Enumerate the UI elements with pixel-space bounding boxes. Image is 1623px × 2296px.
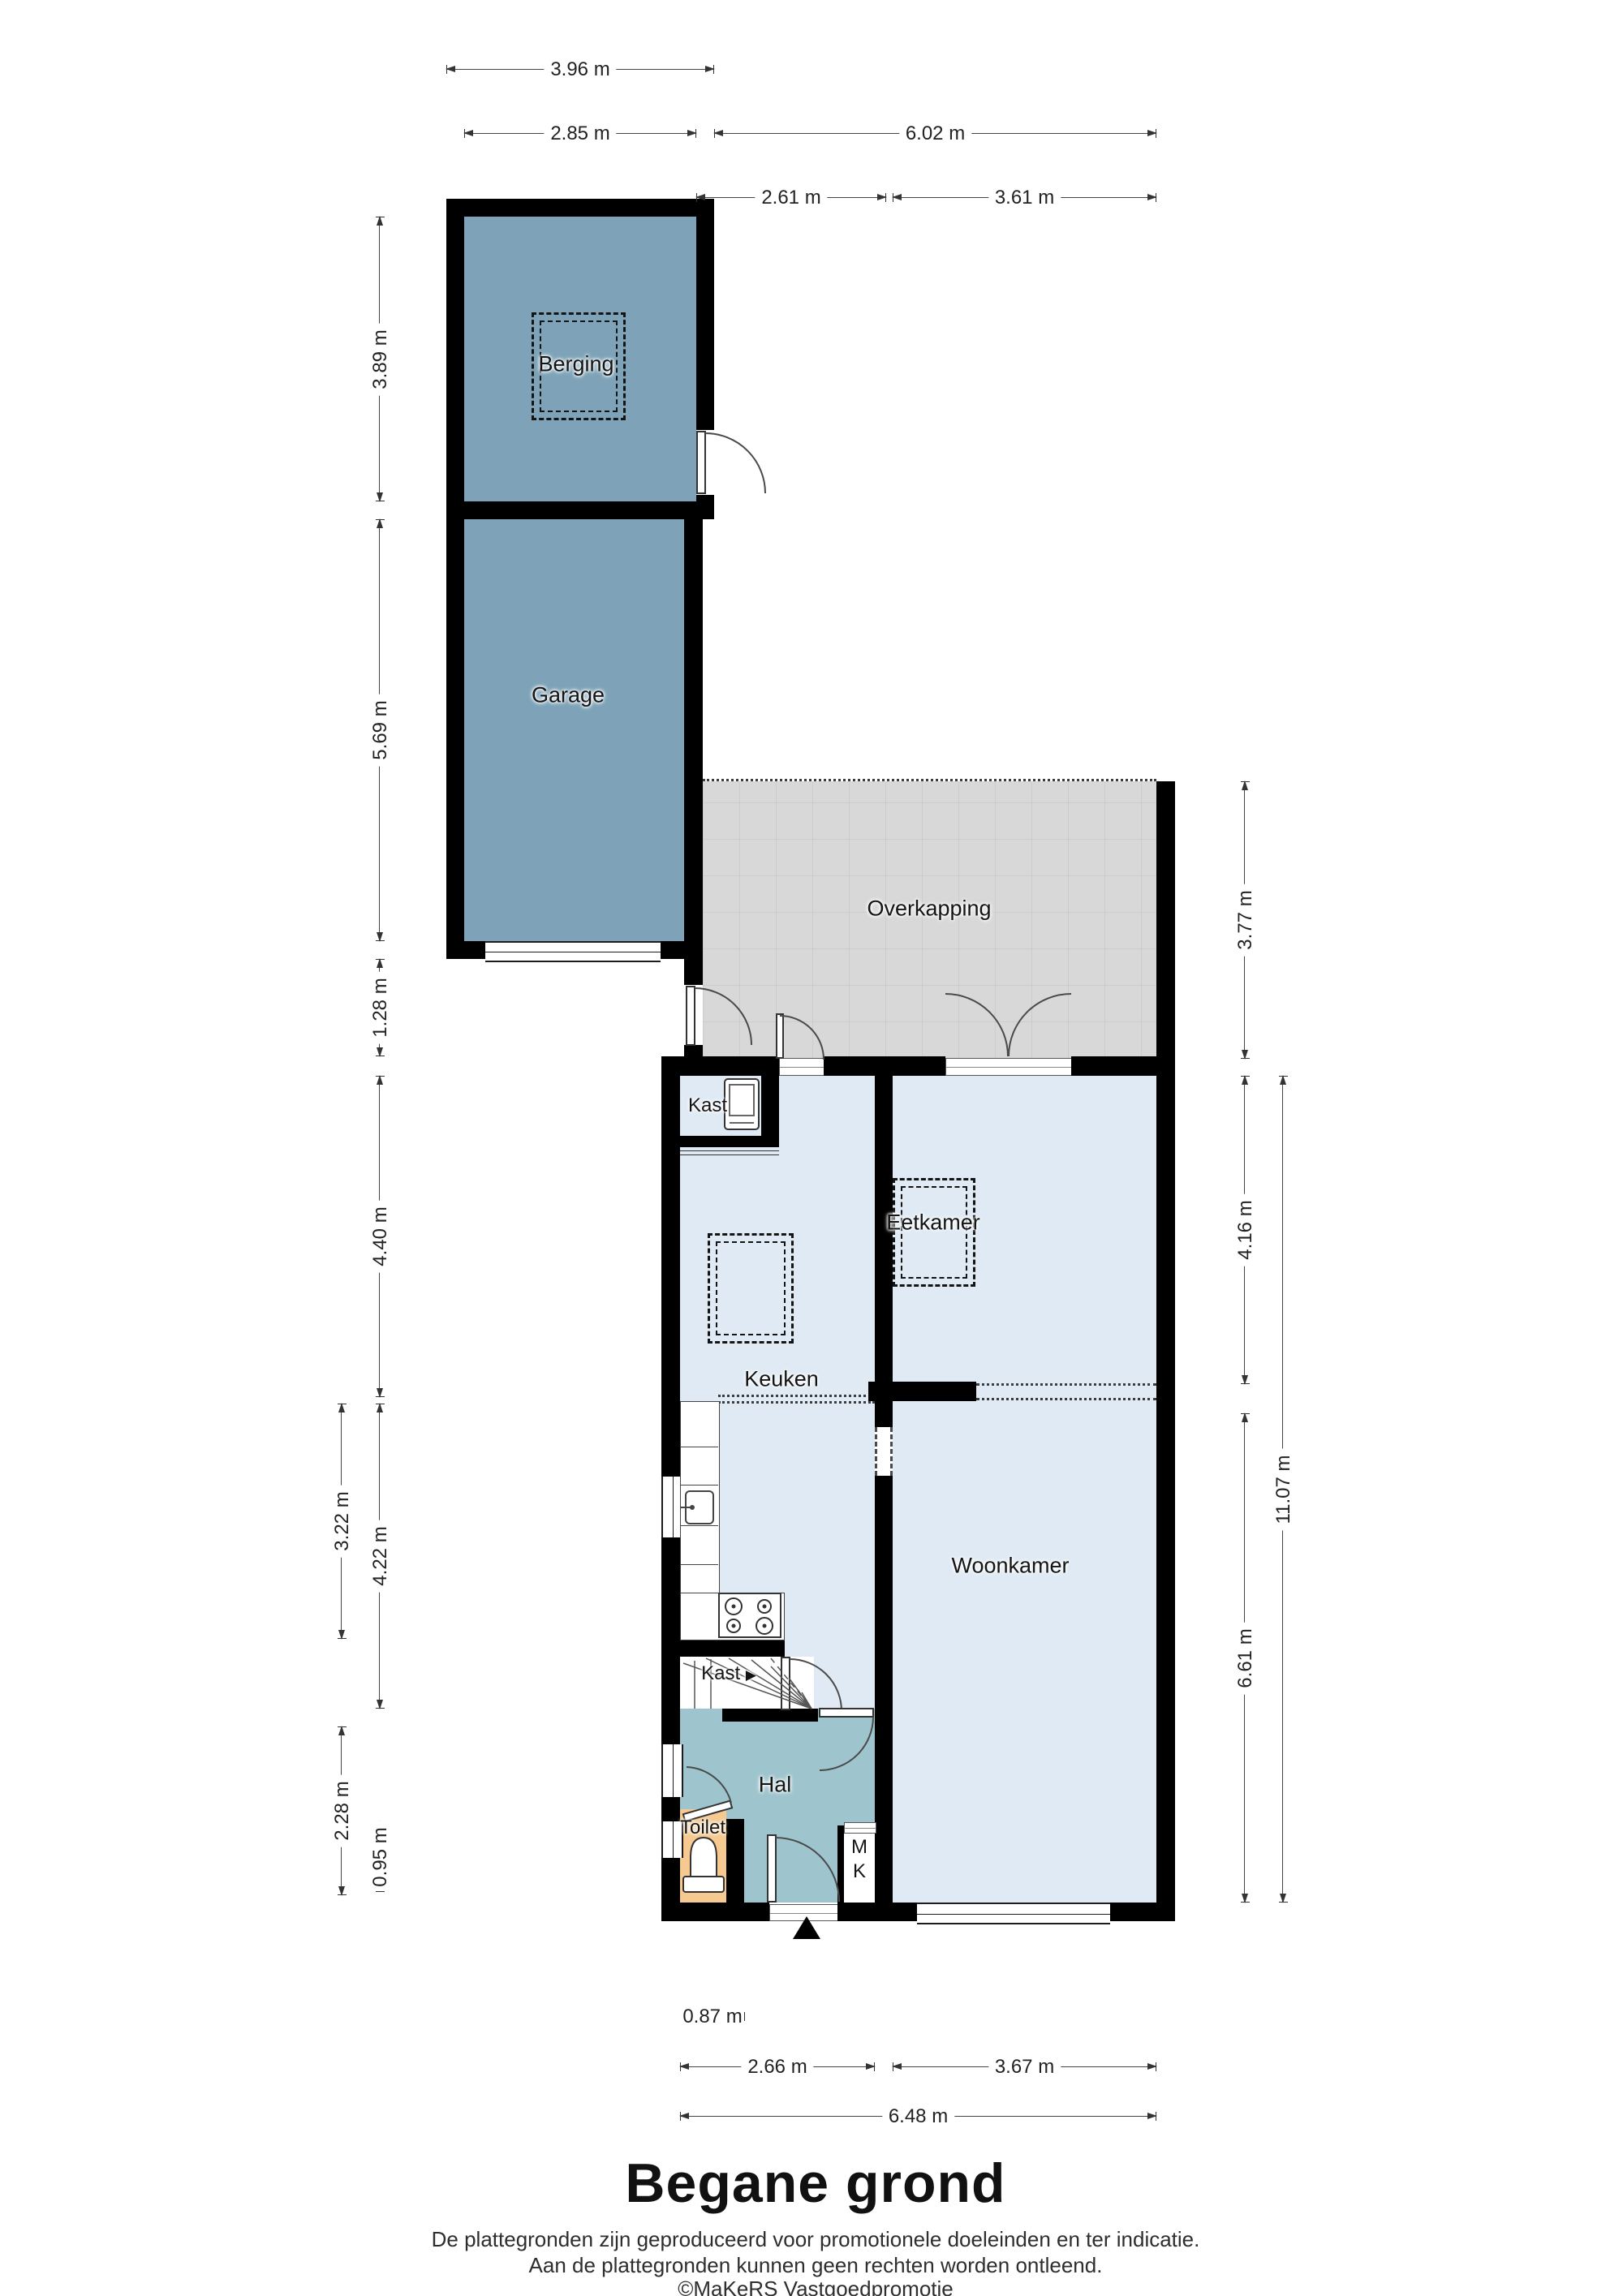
door-swing-trapkast [781, 1658, 842, 1711]
disclaimer-line-1: De plattegronden zijn geproduceerd voor … [0, 2227, 1623, 2252]
room-label-kast-trap: Kast ▶ [701, 1662, 756, 1685]
door-swing-berging [697, 432, 765, 493]
room-label-hal: Hal [759, 1773, 792, 1798]
dim-left-keuken-onder: 4.22 m [379, 1404, 380, 1709]
room-label-woonkamer: Woonkamer [951, 1554, 1069, 1579]
copyright-line: ©MaKeRS Vastgoedpromotie [0, 2277, 1623, 2296]
room-label-kast-trap-text: Kast [701, 1662, 740, 1684]
floorplan-page: Berging Garage Overkapping Kast Keuken E… [0, 0, 1623, 2296]
dim-bottom-woonkamer: 3.67 m [893, 2066, 1156, 2067]
room-label-toilet: Toilet [680, 1817, 725, 1839]
room-label-meterkast-m: M [851, 1836, 867, 1859]
stove-icon [719, 1593, 781, 1637]
dim-left-passage: 1.28 m [379, 959, 380, 1056]
dim-left-keuken-boven: 4.40 m [379, 1076, 380, 1397]
dim-top-berging-outer: 3.96 m [446, 69, 714, 70]
dim-right-overkapping: 3.77 m [1244, 781, 1245, 1059]
dim-left-counter: 3.22 m [341, 1404, 342, 1639]
door-swing-french-doors-eetkamer [945, 994, 1071, 1056]
room-label-meterkast-k: K [853, 1860, 866, 1883]
dim-left-hal: 2.28 m [341, 1726, 342, 1895]
door-swing-front-door [768, 1835, 839, 1902]
dim-top-keuken: 2.61 m [696, 197, 886, 198]
dim-bottom-total: 6.48 m [680, 2116, 1156, 2117]
dim-top-eetkamer: 3.61 m [893, 197, 1156, 198]
room-label-garage: Garage [532, 683, 605, 708]
room-label-keuken: Keuken [744, 1367, 819, 1392]
plan-title: Begane grond [0, 2152, 1623, 2215]
boiler-appliance-icon [725, 1079, 759, 1129]
door-swing-keuken-hal [820, 1709, 873, 1770]
dim-right-eetkamer: 4.16 m [1244, 1076, 1245, 1384]
dim-top-berging-inner: 2.85 m [464, 133, 696, 134]
dim-top-overkapping: 6.02 m [714, 133, 1156, 134]
dim-left-berging: 3.89 m [379, 217, 380, 501]
toilet-icon [683, 1838, 724, 1892]
door-swing-keuken-overkapping [777, 1014, 824, 1060]
entrance-arrow-icon [793, 1916, 820, 1939]
door-swing-toilet [683, 1767, 732, 1821]
arrow-right-icon: ▶ [746, 1667, 756, 1683]
dim-bottom-keuken: 2.66 m [680, 2066, 875, 2067]
room-label-berging: Berging [538, 352, 613, 377]
dim-left-garage: 5.69 m [379, 519, 380, 941]
dim-right-total: 11.07 m [1282, 1076, 1283, 1903]
dim-left-toilet: 0.95 m [379, 1821, 380, 1892]
room-label-kast-boven: Kast [688, 1094, 727, 1117]
room-label-eetkamer: Eetkamer [886, 1210, 980, 1236]
dim-bottom-voordeur: 0.87 m [680, 2016, 745, 2017]
sink-icon [680, 1491, 713, 1524]
door-swing-garage-overkapping [687, 987, 751, 1045]
room-label-overkapping: Overkapping [867, 896, 991, 922]
door-swings-and-fixtures-layer [0, 0, 1623, 2296]
disclaimer-line-2: Aan de plattegronden kunnen geen rechten… [0, 2253, 1623, 2278]
dim-right-woonkamer: 6.61 m [1244, 1413, 1245, 1903]
